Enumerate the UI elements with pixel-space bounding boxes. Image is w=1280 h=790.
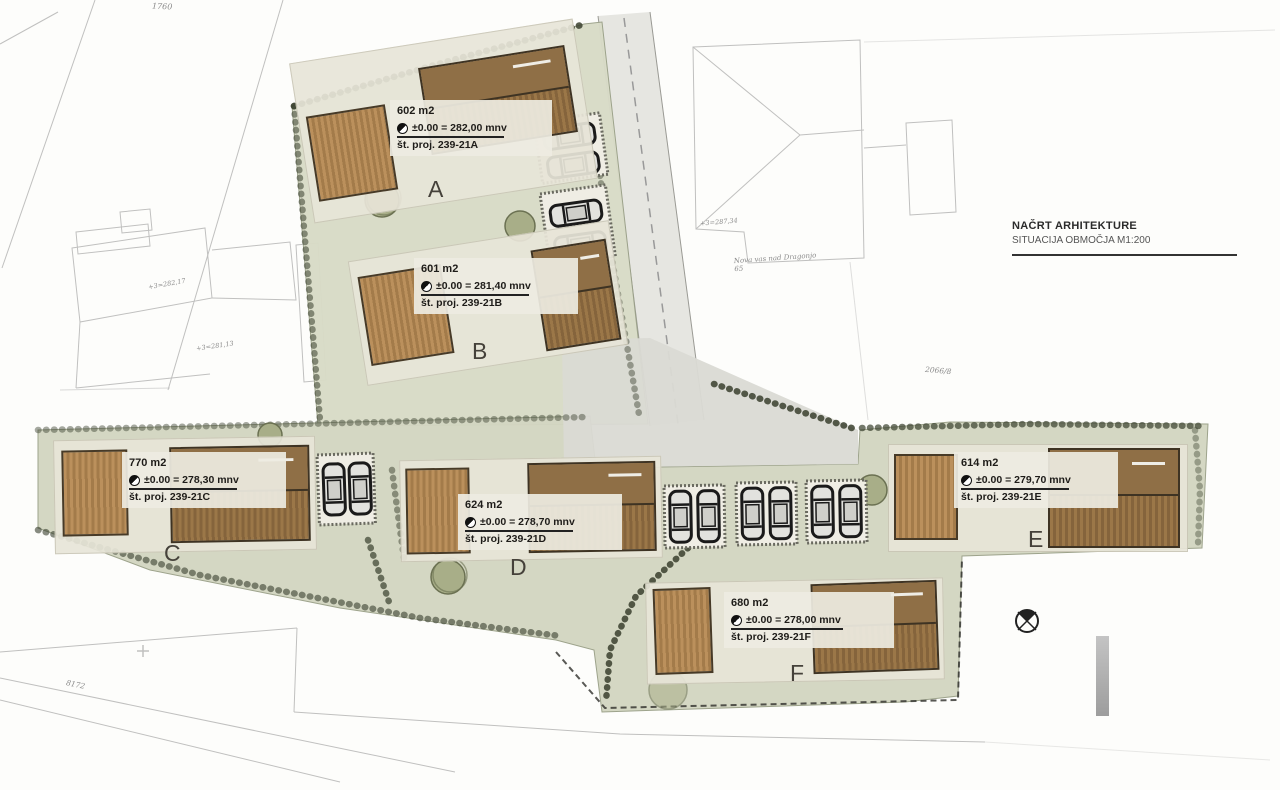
plot-info-b: 601 m2 ±0.00 = 281,40 mnv št. proj. 239-… <box>414 258 578 314</box>
plot-info-a: 602 m2 ±0.00 = 282,00 mnv št. proj. 239-… <box>390 100 552 156</box>
plot-info-f: 680 m2 ±0.00 = 278,00 mnv št. proj. 239-… <box>724 592 894 648</box>
plot-project: št. proj. 239-21B <box>421 297 571 310</box>
plot-project: št. proj. 239-21A <box>397 139 545 152</box>
drawing-title: NAČRT ARHITEKTURE <box>1012 220 1262 232</box>
central-platform <box>562 338 858 468</box>
plot-info-d: 624 m2 ±0.00 = 278,70 mnv št. proj. 239-… <box>458 494 622 550</box>
plot-area: 601 m2 <box>421 263 571 277</box>
benchmark-icon <box>129 475 140 486</box>
site-plan-canvas: 602 m2 ±0.00 = 282,00 mnv št. proj. 239-… <box>0 0 1280 790</box>
benchmark-icon <box>731 615 742 626</box>
plot-area: 624 m2 <box>465 499 615 513</box>
car-icon <box>812 486 834 537</box>
plot-area: 770 m2 <box>129 457 279 471</box>
terrace-e <box>894 454 958 540</box>
plot-area: 614 m2 <box>961 457 1111 471</box>
plot-project: št. proj. 239-21F <box>731 631 887 644</box>
plot-letter-e: E <box>1028 526 1044 553</box>
plot-info-e: 614 m2 ±0.00 = 279,70 mnv št. proj. 239-… <box>954 452 1118 508</box>
benchmark-icon <box>421 281 432 292</box>
plot-elevation: ±0.00 = 278,70 mnv <box>480 516 575 529</box>
drawing-subtitle: SITUACIJA OBMOČJA M1:200 <box>1012 235 1262 246</box>
terrace-f <box>653 587 714 675</box>
plot-letter-f: F <box>790 660 805 687</box>
plot-elevation: ±0.00 = 282,00 mnv <box>412 122 507 135</box>
car-icon <box>323 464 346 516</box>
plot-letter-b: B <box>472 338 488 365</box>
parking-central <box>664 480 867 548</box>
plot-project: št. proj. 239-21C <box>129 491 279 504</box>
plot-area: 680 m2 <box>731 597 887 611</box>
plot-elevation: ±0.00 = 278,00 mnv <box>746 614 841 627</box>
plot-project: št. proj. 239-21E <box>961 491 1111 504</box>
plot-letter-d: D <box>510 554 528 581</box>
plot-area: 602 m2 <box>397 105 545 119</box>
plot-elevation: ±0.00 = 281,40 mnv <box>436 280 531 293</box>
car-icon <box>670 491 692 542</box>
car-icon <box>840 486 862 537</box>
car-icon <box>698 491 720 542</box>
parking-plot-c <box>317 453 375 525</box>
car-icon <box>742 488 764 539</box>
parcel-number-top-left: 1760 <box>152 1 173 11</box>
plot-letter-a: A <box>428 176 444 203</box>
site-plan-drawing <box>0 0 1280 790</box>
plot-elevation: ±0.00 = 278,30 mnv <box>144 474 239 487</box>
benchmark-icon <box>465 517 476 528</box>
car-icon <box>770 488 792 539</box>
scale-bar <box>1096 636 1109 716</box>
car-icon <box>349 463 372 515</box>
benchmark-icon <box>961 475 972 486</box>
plot-elevation: ±0.00 = 279,70 mnv <box>976 474 1071 487</box>
plot-project: št. proj. 239-21D <box>465 533 615 546</box>
north-symbol-icon <box>1016 610 1038 632</box>
benchmark-icon <box>397 123 408 134</box>
plot-letter-c: C <box>164 540 182 567</box>
terrace-a <box>306 104 398 201</box>
terrace-c <box>61 449 128 536</box>
title-block: NAČRT ARHITEKTURE SITUACIJA OBMOČJA M1:2… <box>1012 220 1262 256</box>
plot-info-c: 770 m2 ±0.00 = 278,30 mnv št. proj. 239-… <box>122 452 286 508</box>
title-rule <box>1012 254 1237 256</box>
